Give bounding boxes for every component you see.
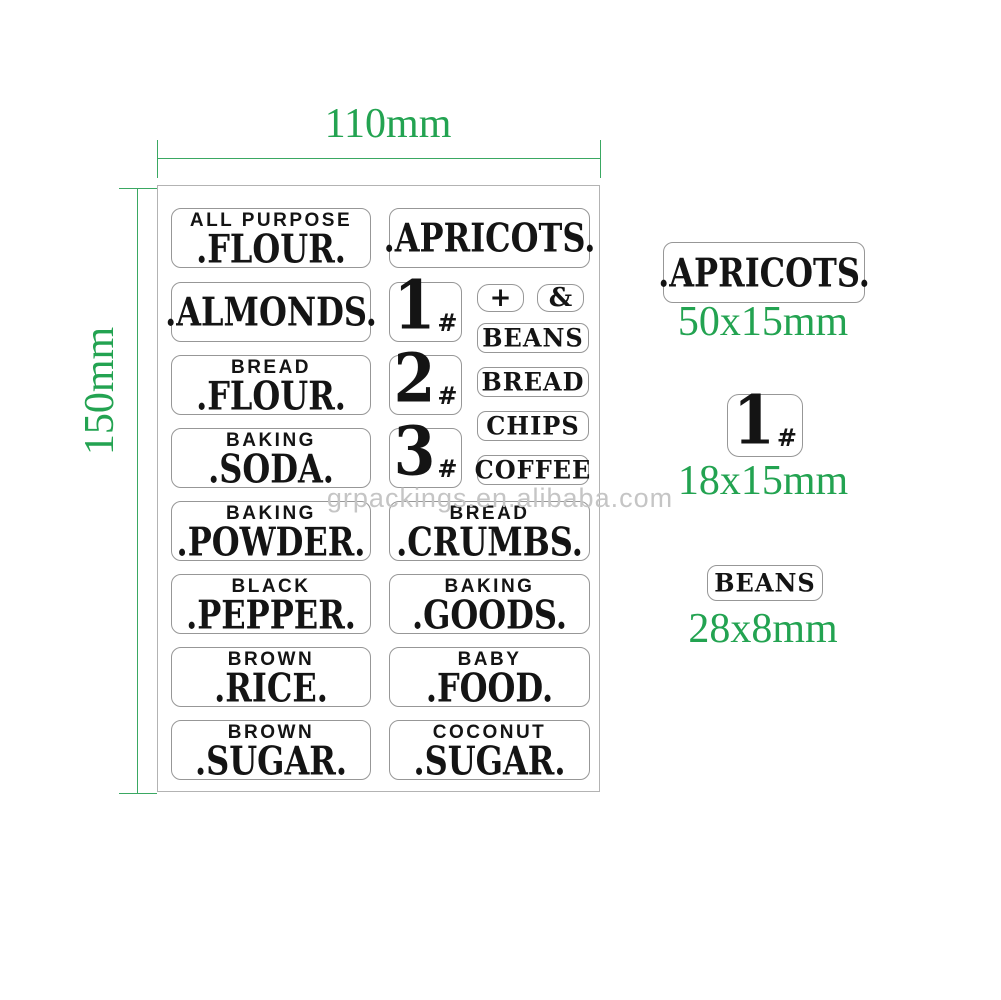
label-apricots: .APRICOTS. (389, 208, 590, 268)
label-chips: CHIPS (477, 411, 589, 441)
sample-label-number-1: 1 # (727, 394, 803, 457)
sample-label-beans: BEANS (707, 565, 823, 601)
label-number-2: 2 # (389, 355, 462, 415)
watermark-text: grpackings.en.alibaba.com (327, 483, 673, 514)
label-ampersand: & (537, 284, 584, 312)
label-brown-sugar: BROWN .SUGAR. (171, 720, 371, 780)
label-plus: + (477, 284, 524, 312)
label-number-3: 3 # (389, 428, 462, 488)
sample-label-apricots: .APRICOTS. (663, 242, 865, 303)
height-dimension-line (137, 188, 138, 794)
height-dimension-tick-bottom (119, 793, 157, 794)
label-beans: BEANS (477, 323, 589, 353)
width-dimension-label: 110mm (278, 101, 498, 147)
label-bread-flour: BREAD .FLOUR. (171, 355, 371, 415)
sample-size-large: 50x15mm (660, 300, 866, 344)
sample-size-small: 28x8mm (660, 607, 866, 651)
label-almonds: .ALMONDS. (171, 282, 371, 342)
label-number-1: 1 # (389, 282, 462, 342)
label-brown-rice: BROWN .RICE. (171, 647, 371, 707)
width-dimension-tick-right (600, 140, 601, 178)
label-coconut-sugar: COCONUT .SUGAR. (389, 720, 590, 780)
label-baking-goods: BAKING .GOODS. (389, 574, 590, 634)
product-spec-image: 110mm 150mm ALL PURPOSE .FLOUR. .ALMONDS… (0, 0, 1001, 1000)
label-bread: BREAD (477, 367, 589, 397)
label-coffee: COFFEE (477, 455, 589, 485)
width-dimension-tick-left (157, 140, 158, 178)
width-dimension-line (157, 158, 601, 159)
height-dimension-tick-top (119, 188, 157, 189)
label-black-pepper: BLACK .PEPPER. (171, 574, 371, 634)
height-dimension-label: 150mm (77, 321, 123, 461)
label-baking-soda: BAKING .SODA. (171, 428, 371, 488)
label-all-purpose-flour: ALL PURPOSE .FLOUR. (171, 208, 371, 268)
sample-size-number: 18x15mm (660, 459, 866, 503)
label-baby-food: BABY .FOOD. (389, 647, 590, 707)
